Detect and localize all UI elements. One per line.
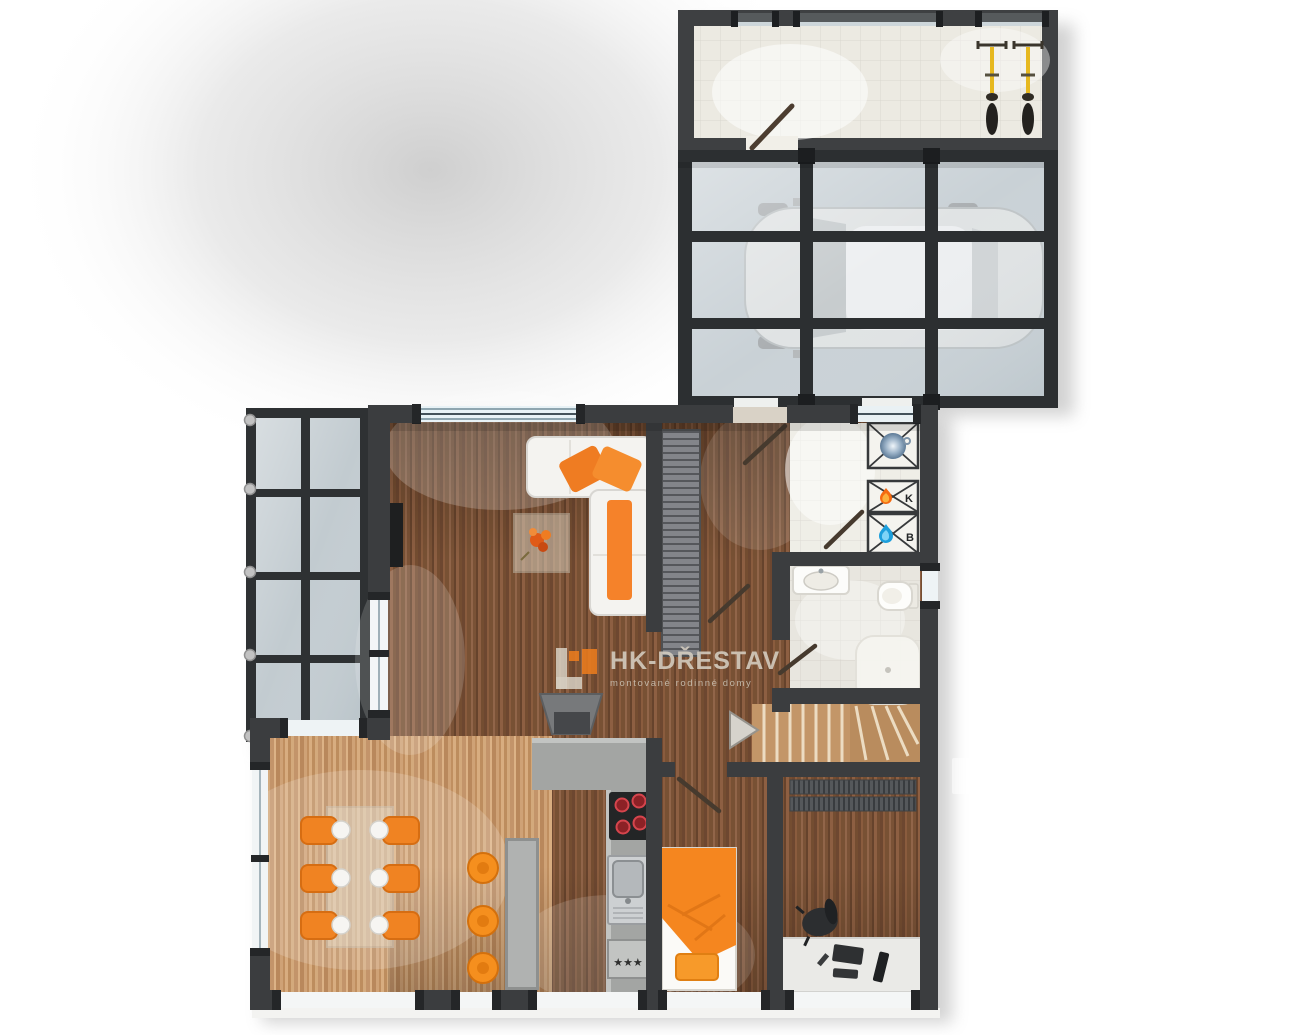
washbasin bbox=[793, 566, 849, 594]
boiler-label: K bbox=[905, 493, 913, 505]
technical-room: K B bbox=[868, 423, 918, 553]
bar-island bbox=[505, 838, 539, 990]
bar-stools bbox=[468, 853, 498, 983]
wardrobe bbox=[662, 430, 700, 656]
bike-storage-room bbox=[678, 10, 1058, 152]
window-pergola-wing bbox=[280, 718, 367, 738]
entry-threshold bbox=[733, 407, 787, 423]
window-north-living bbox=[412, 404, 585, 424]
storage-windows bbox=[731, 11, 1049, 27]
stairs bbox=[730, 704, 920, 762]
keyboard bbox=[833, 968, 859, 979]
tv-wall-mounted bbox=[390, 503, 403, 567]
water-heater-box: B bbox=[868, 514, 918, 553]
sofa-throw bbox=[607, 500, 632, 600]
window-west-dining bbox=[250, 762, 270, 956]
kitchen-counter bbox=[532, 738, 662, 790]
sphere-icon bbox=[880, 433, 906, 459]
toilet bbox=[878, 582, 918, 610]
office-desk bbox=[782, 938, 922, 992]
bed bbox=[662, 848, 736, 990]
coffee-table bbox=[514, 514, 569, 572]
freezer-stars-label: ★★★ bbox=[613, 957, 643, 969]
floor-plan-svg: ★★★ K B bbox=[0, 0, 1291, 1035]
garage-carport bbox=[678, 148, 1058, 410]
bed-pillow bbox=[676, 954, 718, 980]
cooktop bbox=[609, 792, 649, 840]
kitchen-sink bbox=[608, 856, 648, 924]
exterior-detail bbox=[952, 758, 986, 794]
pergola-canopy bbox=[245, 408, 371, 742]
window-east-bath bbox=[920, 563, 940, 609]
bedroom bbox=[662, 848, 736, 990]
window-north-tech bbox=[850, 404, 921, 424]
windows-south bbox=[272, 990, 920, 1010]
floor-plan-page: ★★★ K B bbox=[0, 0, 1291, 1035]
window-west-living bbox=[368, 592, 390, 718]
south-terrace-sill bbox=[252, 1008, 940, 1018]
boiler-box: K bbox=[868, 481, 918, 512]
water-heater-label: B bbox=[906, 532, 914, 544]
freezer: ★★★ bbox=[608, 940, 648, 978]
